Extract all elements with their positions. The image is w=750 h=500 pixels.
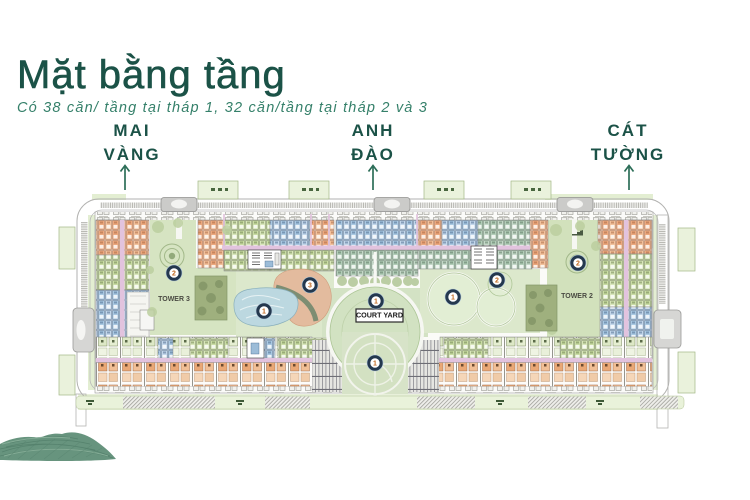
svg-text:1: 1: [374, 299, 378, 306]
svg-text:1: 1: [262, 309, 266, 316]
svg-text:TOWER 2: TOWER 2: [561, 293, 593, 300]
svg-text:3: 3: [308, 283, 312, 290]
svg-text:1: 1: [451, 295, 455, 302]
svg-text:2: 2: [576, 261, 580, 268]
svg-text:COURT YARD: COURT YARD: [356, 311, 403, 320]
svg-text:2: 2: [495, 278, 499, 285]
svg-text:2: 2: [172, 271, 176, 278]
svg-text:TOWER 3: TOWER 3: [158, 296, 190, 303]
svg-text:1: 1: [373, 361, 377, 368]
